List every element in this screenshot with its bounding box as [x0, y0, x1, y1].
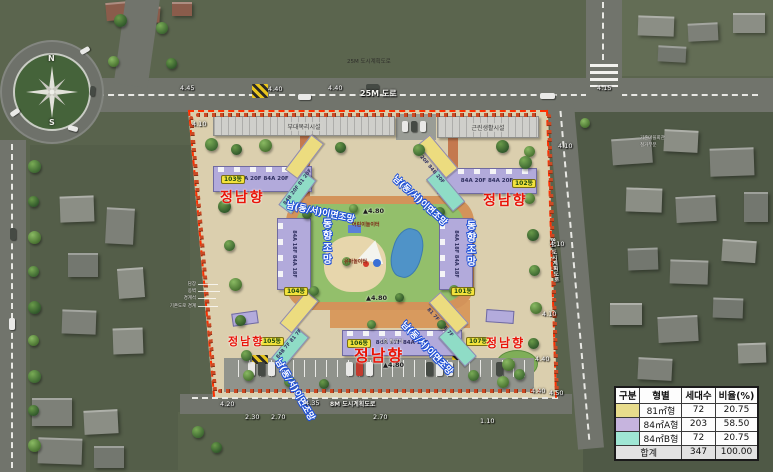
- car: [258, 362, 265, 376]
- compass-south-label: S: [49, 118, 55, 127]
- badge-104: 104동: [284, 287, 308, 296]
- bottom-road-name: 8M 도시계획도로: [330, 399, 375, 408]
- dimension: 4.10: [542, 310, 556, 318]
- tree: [519, 156, 532, 169]
- tree: [528, 338, 539, 349]
- bg-building: [626, 187, 663, 212]
- field-patch: [178, 412, 583, 472]
- legend-ratio: 20.75: [715, 431, 758, 445]
- tree: [114, 14, 127, 27]
- bg-building: [638, 15, 675, 36]
- tree: [243, 370, 254, 381]
- tree: [108, 56, 119, 67]
- tree: [28, 266, 39, 277]
- lane-line: [98, 94, 758, 96]
- balcony-notches: [440, 223, 445, 285]
- bg-building: [172, 2, 192, 16]
- legend-swatch-84a: [615, 417, 640, 431]
- car: [9, 318, 15, 330]
- lane-line: [11, 144, 13, 468]
- car: [402, 121, 408, 132]
- tree: [156, 22, 168, 34]
- building-102-spec: 84A 20F 84A 20F: [461, 178, 513, 184]
- car: [10, 228, 16, 240]
- annotation-note: 담장: [130, 281, 196, 287]
- tree: [231, 144, 242, 155]
- balcony-notches: [278, 223, 283, 285]
- legend-swatch-81: [615, 403, 640, 417]
- tree: [192, 426, 204, 438]
- building-wing-bar: [486, 309, 515, 324]
- building-104: 84A 18F 84A 18F: [277, 218, 311, 290]
- tree: [211, 442, 222, 453]
- tree: [28, 301, 41, 314]
- legend-type: 84㎡B형: [640, 431, 682, 445]
- legend-count: 72: [682, 431, 715, 445]
- tree: [166, 58, 177, 69]
- bg-building: [721, 239, 756, 263]
- legend-row: 81㎡형 72 20.75: [615, 403, 758, 417]
- leader-line: [198, 291, 220, 292]
- bg-building: [710, 147, 755, 177]
- dimension: 4.20: [220, 400, 234, 408]
- facility-building-left: 부대복리시설: [213, 116, 395, 136]
- bg-building: [675, 195, 716, 223]
- dimension: 2.70: [271, 413, 285, 421]
- south-facing-label: 정남향: [220, 187, 265, 207]
- dimension: 4.10: [192, 120, 206, 128]
- dimension: 4.40: [268, 85, 282, 93]
- dimension: 2.70: [373, 413, 387, 421]
- legend-count: 203: [682, 417, 715, 431]
- leader-line: [198, 298, 216, 299]
- bg-building: [105, 207, 135, 244]
- dimension: 4.40: [535, 355, 549, 363]
- legend-row: 84㎡A형 203 58.50: [615, 417, 758, 431]
- hedge: [196, 113, 540, 117]
- left-road: [0, 140, 26, 472]
- compass-rose-icon: [24, 64, 80, 120]
- tree: [496, 140, 509, 153]
- east-view-label: 동향조망: [462, 220, 477, 268]
- dimension: 4.35: [305, 399, 319, 407]
- lane-line: [602, 2, 604, 60]
- legend-type: 84㎡A형: [640, 417, 682, 431]
- tree: [529, 265, 540, 276]
- dimension: 1.10: [480, 417, 494, 425]
- bg-building: [637, 357, 672, 381]
- tree: [28, 439, 41, 452]
- elevation-mark: ▲4.80: [366, 294, 387, 302]
- bg-building: [94, 446, 124, 468]
- annotation-note: 기존마을회관: [640, 135, 665, 141]
- legend-swatch-84b: [615, 431, 640, 445]
- tree: [437, 320, 446, 329]
- tree: [28, 335, 39, 346]
- bg-building: [744, 192, 768, 222]
- leader-line: [198, 306, 218, 307]
- badge-101: 101동: [451, 287, 475, 296]
- top-road-name: 25M 도로: [360, 88, 397, 99]
- car: [411, 121, 417, 132]
- tree: [309, 286, 319, 296]
- tree: [367, 320, 376, 329]
- annotation-note: 경계석: [130, 295, 196, 301]
- tree: [28, 231, 41, 244]
- legend-total-count: 347: [682, 445, 715, 460]
- car: [298, 94, 311, 100]
- bg-building: [68, 253, 98, 277]
- bg-building: [113, 327, 144, 354]
- bg-building: [62, 309, 97, 334]
- east-view-label: 동향조망: [318, 218, 333, 266]
- annotation-note: 철거부분: [640, 142, 657, 148]
- legend-total-ratio: 100.00: [715, 445, 758, 460]
- legend-ratio: 20.75: [715, 403, 758, 417]
- compass-north-label: N: [48, 54, 55, 63]
- badge-102: 102동: [512, 179, 536, 188]
- bg-building: [663, 129, 698, 153]
- tree: [530, 302, 542, 314]
- bg-building: [738, 343, 767, 364]
- legend-ratio: 58.50: [715, 417, 758, 431]
- tree: [229, 278, 242, 291]
- bg-building: [670, 259, 709, 284]
- tree: [395, 293, 404, 302]
- legend-col-category: 구분: [615, 387, 640, 403]
- legend-total-label: 합계: [615, 445, 682, 460]
- tree: [235, 315, 246, 326]
- elevation-mark: ▲4.80: [383, 361, 404, 369]
- playground-label: 유아놀이터: [344, 258, 367, 265]
- annotation-note: 옹벽: [130, 288, 196, 294]
- bg-building: [60, 195, 95, 222]
- dimension: 4.45: [180, 84, 194, 92]
- elevation-mark: ▲4.80: [363, 207, 384, 215]
- bg-building: [713, 297, 744, 318]
- dimension: 2.30: [245, 413, 259, 421]
- bg-building: [658, 45, 687, 62]
- tree: [319, 379, 329, 389]
- car: [540, 93, 555, 99]
- bg-building: [83, 409, 118, 435]
- dimension: 4.10: [550, 240, 564, 248]
- tree: [497, 376, 509, 388]
- tree: [205, 138, 218, 151]
- building-104-spec: 84A 18F 84A 18F: [291, 230, 297, 278]
- badge-103: 103동: [221, 175, 245, 184]
- south-facing-label: 정남향: [228, 333, 264, 349]
- tree: [580, 118, 590, 128]
- bg-building: [610, 303, 642, 325]
- dimension: 4.50: [549, 389, 563, 397]
- dimension: 4.40: [328, 84, 342, 92]
- legend-header-row: 구분 형별 세대수 비율(%): [615, 387, 758, 403]
- bg-building: [38, 437, 83, 465]
- legend-col-households: 세대수: [682, 387, 715, 403]
- building-101-spec: 84A 18F 84A 18F: [453, 230, 459, 278]
- tree: [502, 358, 515, 371]
- car: [426, 362, 433, 376]
- tree: [28, 370, 41, 383]
- car: [90, 86, 96, 96]
- legend-table: 구분 형별 세대수 비율(%) 81㎡형 72 20.75 84㎡A형 203 …: [614, 386, 759, 461]
- dimension: 4.15: [597, 84, 611, 92]
- tree: [28, 405, 39, 416]
- bg-building: [628, 247, 659, 270]
- tree: [468, 370, 479, 381]
- tree: [28, 196, 39, 207]
- legend-type: 81㎡형: [640, 403, 682, 417]
- playground-label: 어린이놀이터: [352, 221, 380, 228]
- tree: [335, 142, 346, 153]
- tree: [259, 139, 272, 152]
- tree: [413, 144, 425, 156]
- south-facing-label: 정남향: [486, 334, 525, 351]
- piloti-label: 1층 필로티: [380, 338, 403, 345]
- legend-count: 72: [682, 403, 715, 417]
- tree: [241, 350, 252, 361]
- play-equipment: [373, 259, 381, 267]
- facility-building-right: 근린생활시설: [437, 116, 539, 138]
- car: [420, 121, 426, 132]
- dimension: 4.40: [531, 387, 545, 395]
- tree: [514, 369, 525, 380]
- site-plan-canvas: N S 부대복리시설 근린생활시설 84A 20F 84A 20F 84A 20…: [0, 0, 773, 472]
- car: [346, 362, 353, 376]
- top-road-planning-name: 25M 도시계획도로: [347, 57, 391, 65]
- bg-building: [688, 22, 719, 42]
- facility-left-label: 부대복리시설: [285, 122, 322, 131]
- dimension: 4.10: [558, 142, 572, 150]
- bg-building: [733, 13, 765, 33]
- leader-line: [198, 284, 218, 285]
- bg-building: [657, 315, 698, 343]
- site-boundary: [188, 110, 546, 112]
- tree: [28, 160, 41, 173]
- facility-right-label: 근린생활시설: [469, 123, 506, 132]
- annotation-note: 기존도로 경계: [130, 303, 196, 309]
- south-facing-label: 정남향: [483, 190, 528, 210]
- traffic-island: [252, 84, 268, 98]
- hedge: [218, 389, 540, 393]
- legend-total-row: 합계 347 100.00: [615, 445, 758, 460]
- legend-row: 84㎡B형 72 20.75: [615, 431, 758, 445]
- legend-col-type: 형별: [640, 387, 682, 403]
- tree: [527, 229, 539, 241]
- top-right-road: [586, 0, 622, 112]
- tree: [224, 240, 235, 251]
- legend-col-ratio: 비율(%): [715, 387, 758, 403]
